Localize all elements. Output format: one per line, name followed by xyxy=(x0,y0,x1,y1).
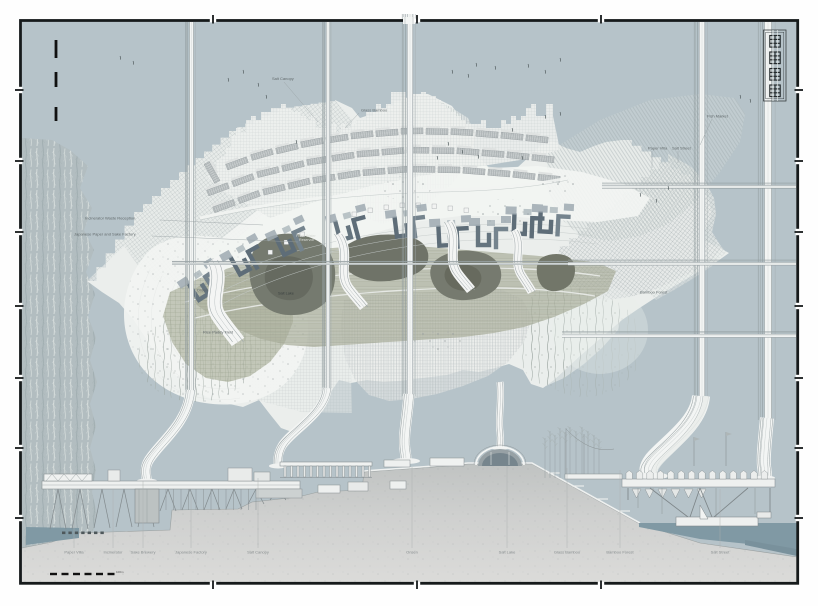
svg-text:Salt Lake: Salt Lake xyxy=(278,292,294,296)
svg-text:Fish Market: Fish Market xyxy=(707,114,729,119)
svg-text:Japanese Paper and Sake Factor: Japanese Paper and Sake Factory xyxy=(74,232,136,237)
svg-text:Bamboo Forest: Bamboo Forest xyxy=(606,550,634,555)
svg-text:Paper Villa: Paper Villa xyxy=(64,550,84,555)
svg-text:Sake Brewery: Sake Brewery xyxy=(131,550,156,555)
svg-text:Glass Bamboo: Glass Bamboo xyxy=(361,108,388,113)
svg-text:100m: 100m xyxy=(116,570,124,574)
svg-text:Incinerator: Incinerator xyxy=(104,550,124,555)
svg-text:Paper Villa: Paper Villa xyxy=(648,146,668,151)
svg-text:Japanese Factory: Japanese Factory xyxy=(175,550,207,555)
svg-text:Incinerator Waste Reception: Incinerator Waste Reception xyxy=(85,216,135,221)
svg-text:Glass Bamboo: Glass Bamboo xyxy=(554,550,581,555)
svg-text:Salt Street: Salt Street xyxy=(711,550,731,555)
svg-text:Salt Lake: Salt Lake xyxy=(499,550,516,555)
svg-text:Salt Street: Salt Street xyxy=(672,146,692,151)
svg-text:Rice Paddy Field: Rice Paddy Field xyxy=(203,330,233,335)
svg-text:Bamboo Forest: Bamboo Forest xyxy=(640,290,668,295)
svg-text:Onsen: Onsen xyxy=(197,289,208,293)
svg-text:Salt Canopy: Salt Canopy xyxy=(272,76,294,81)
svg-text:Salt Canopy: Salt Canopy xyxy=(247,550,269,555)
svg-text:Reservoir: Reservoir xyxy=(299,238,315,242)
svg-text:Onsen: Onsen xyxy=(406,550,418,555)
